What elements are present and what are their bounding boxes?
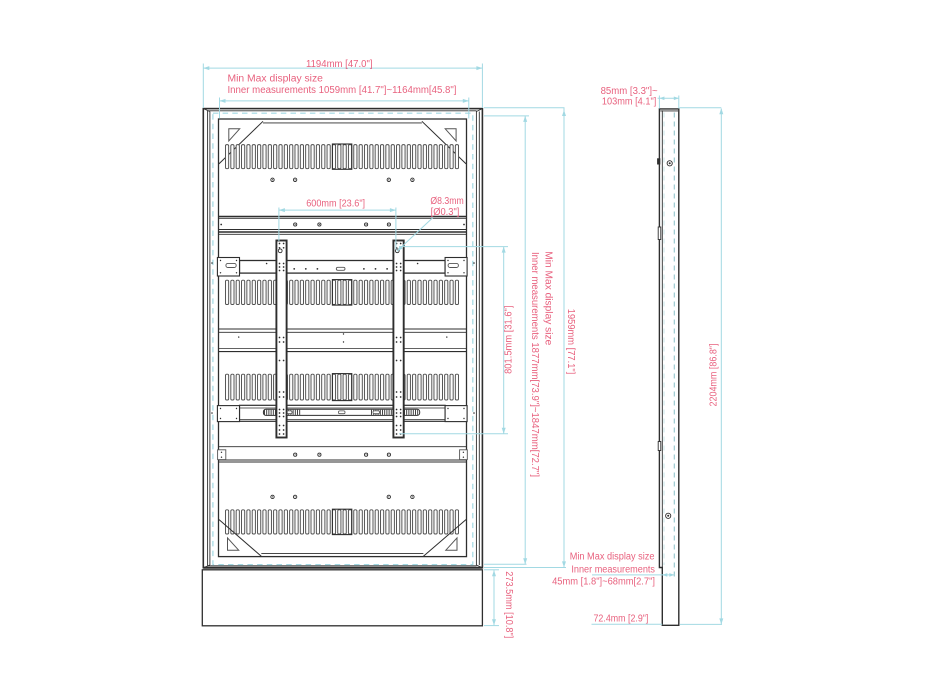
svg-text:72.4mm [2.9"]: 72.4mm [2.9"] (594, 614, 649, 625)
svg-text:Inner measurements 1059mm [41.: Inner measurements 1059mm [41.7"]~1164mm… (228, 85, 457, 96)
svg-text:[Ø0.3"]: [Ø0.3"] (431, 207, 460, 218)
svg-text:103mm [4.1"]: 103mm [4.1"] (602, 97, 657, 108)
svg-text:Min Max display size: Min Max display size (542, 251, 553, 345)
svg-text:Inner measurements 1877mm[73.9: Inner measurements 1877mm[73.9"]~1847mm[… (529, 252, 540, 477)
svg-text:Min Max display size: Min Max display size (228, 73, 324, 84)
svg-text:Inner measurements: Inner measurements (571, 565, 655, 576)
svg-text:2204mm [86.8"]: 2204mm [86.8"] (708, 343, 719, 406)
svg-text:45mm [1.8"]~68mm[2.7"]: 45mm [1.8"]~68mm[2.7"] (552, 577, 655, 588)
svg-text:273.5mm [10.8"]: 273.5mm [10.8"] (503, 571, 514, 638)
svg-text:Ø8.3mm: Ø8.3mm (430, 196, 463, 207)
svg-text:Min Max display size: Min Max display size (570, 551, 655, 562)
svg-text:1194mm [47.0"]: 1194mm [47.0"] (306, 59, 373, 70)
svg-text:801.5mm [31.6"]: 801.5mm [31.6"] (503, 305, 514, 374)
svg-text:1959mm [77.1"]: 1959mm [77.1"] (565, 309, 576, 375)
svg-text:85mm [3.3"]~: 85mm [3.3"]~ (601, 86, 658, 97)
svg-text:600mm [23.6"]: 600mm [23.6"] (306, 199, 365, 210)
